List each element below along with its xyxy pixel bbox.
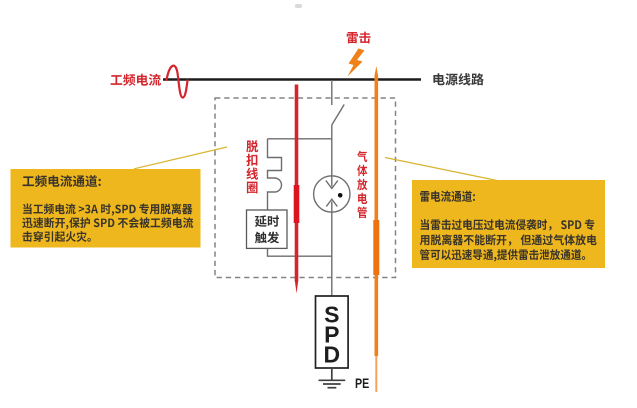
svg-text:PE: PE xyxy=(355,375,369,391)
svg-text:D: D xyxy=(323,342,340,368)
